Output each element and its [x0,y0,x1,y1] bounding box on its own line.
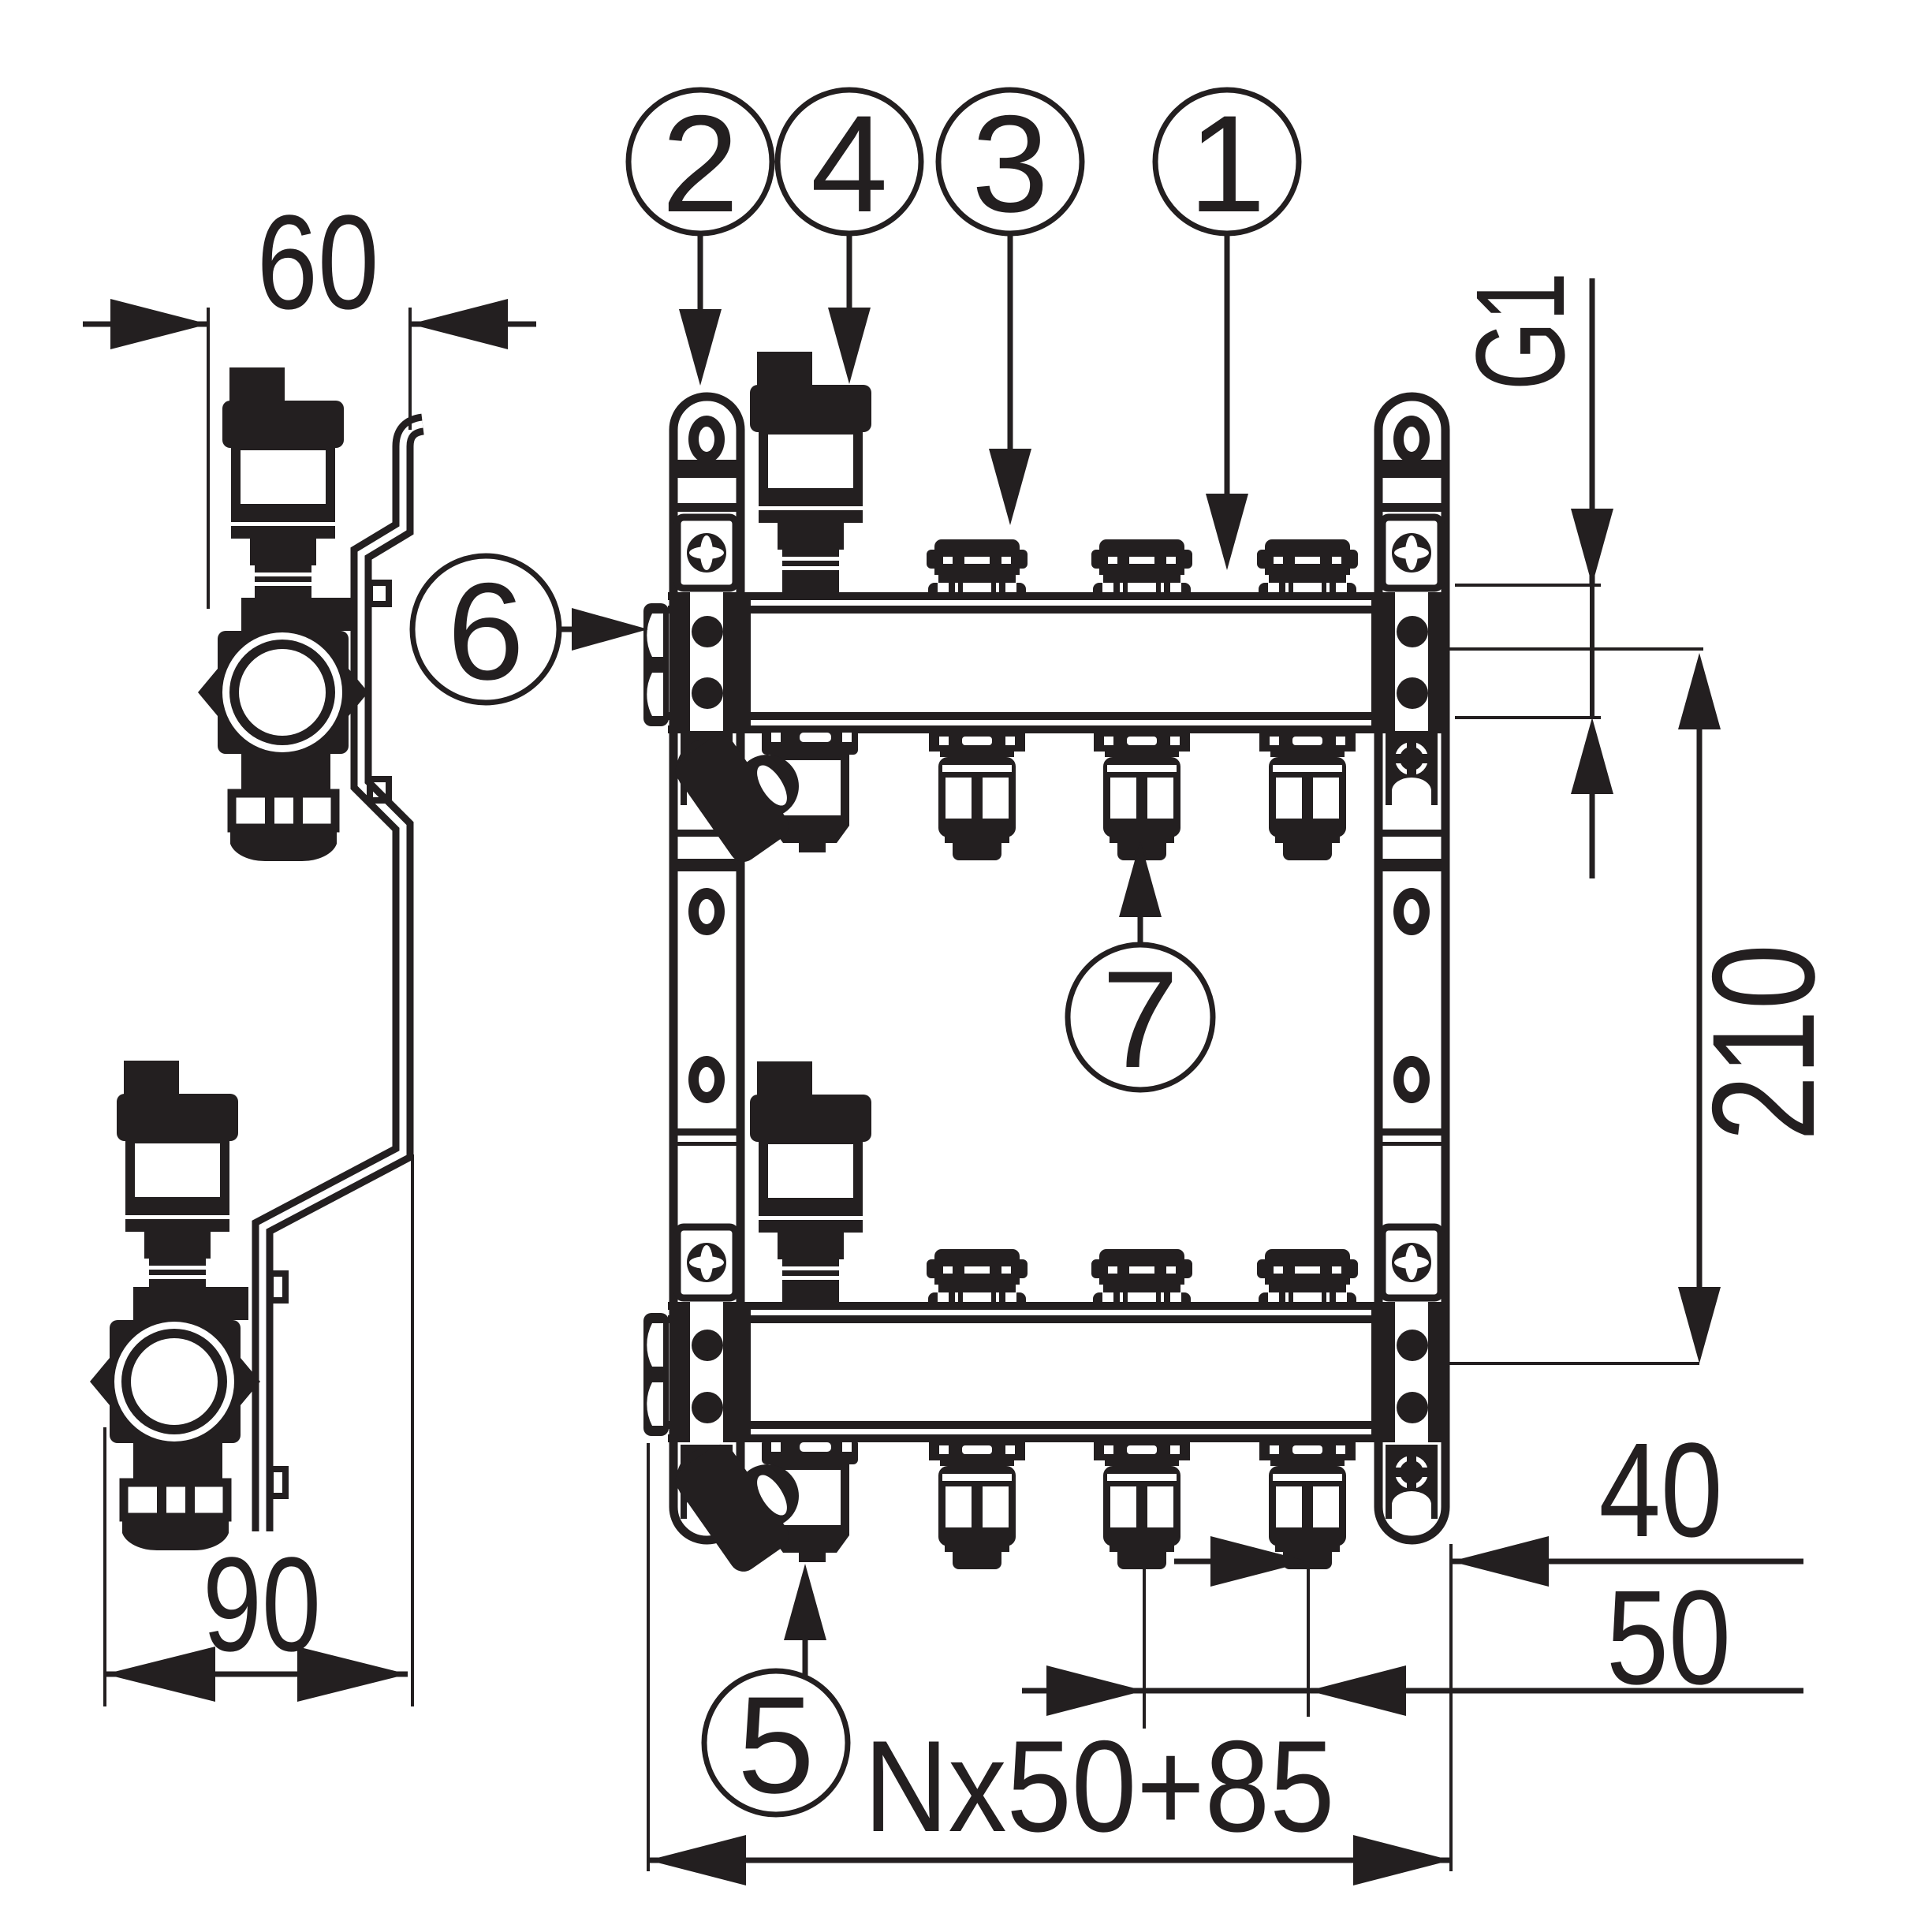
svg-text:210: 210 [1683,944,1845,1141]
svg-text:5: 5 [737,1669,815,1822]
svg-text:1: 1 [1188,88,1266,241]
svg-text:40: 40 [1599,1415,1723,1565]
svg-text:4: 4 [811,88,888,241]
svg-text:G1: G1 [1449,272,1591,390]
svg-text:7: 7 [1102,943,1179,1097]
svg-text:2: 2 [662,88,739,241]
svg-text:6: 6 [447,555,524,709]
svg-text:Nx50+85: Nx50+85 [864,1714,1335,1859]
svg-text:3: 3 [972,88,1049,241]
svg-text:60: 60 [257,188,379,338]
